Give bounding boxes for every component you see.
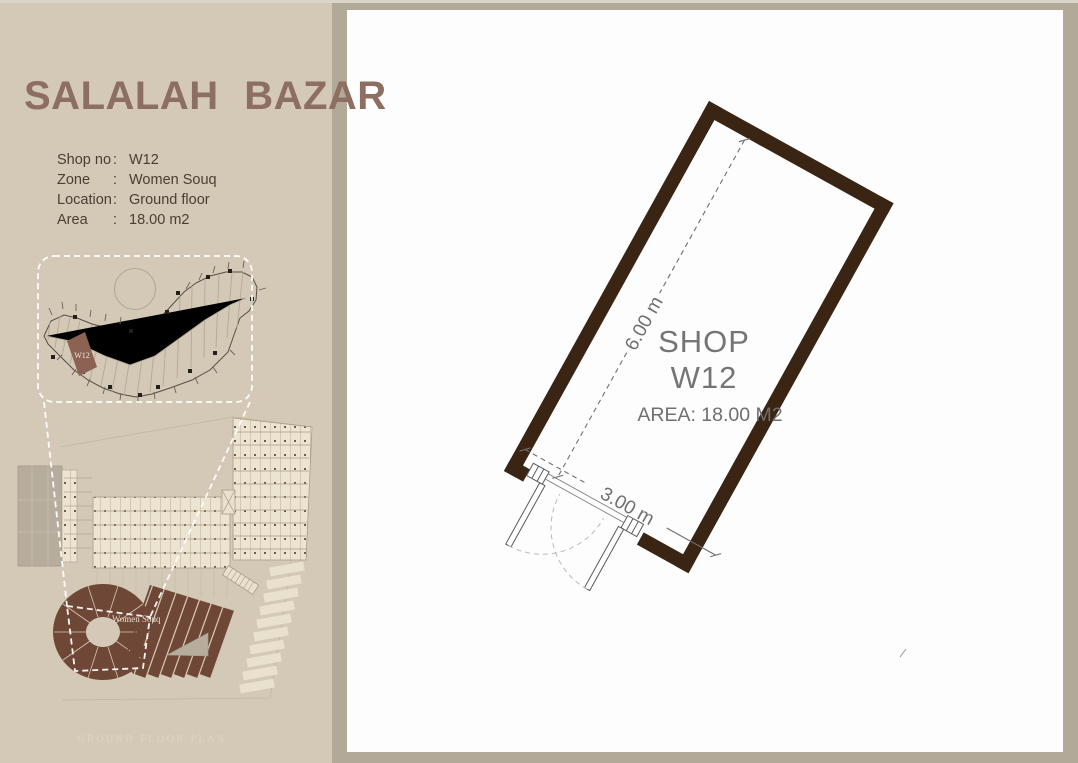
info-row-location: Location : Ground floor (57, 190, 217, 210)
shop-rows-block (93, 497, 230, 568)
info-value: Ground floor (129, 190, 217, 210)
info-row-shop-no: Shop no : W12 (57, 150, 217, 170)
door-swing-right (526, 494, 621, 589)
shop-area-label: AREA: 18.00 M2 (637, 404, 782, 426)
info-separator: : (113, 190, 129, 210)
info-value: Women Souq (129, 170, 217, 190)
door-leaf-left (506, 483, 545, 547)
info-label: Shop no (57, 150, 113, 170)
site-plan: Women Souq GROUND FLOOR PLAN (18, 417, 312, 745)
shop-name-line1: SHOP (658, 324, 750, 359)
shop-plan-drawing: 6.00 m 3.00 m (347, 10, 1063, 752)
page-title: SALALAH BAZAR (24, 74, 387, 119)
courtyard-circle (115, 269, 156, 310)
brochure-page: SALALAH BAZAR Shop no : W12 Zone : Women… (0, 0, 1078, 763)
info-value: W12 (129, 150, 217, 170)
door-swing-left (508, 484, 603, 579)
info-separator: : (113, 170, 129, 190)
shop-name-line2: W12 (671, 360, 738, 395)
info-separator: : (113, 210, 129, 230)
parcel-label: W12 (74, 351, 90, 360)
location-maps: Women Souq GROUND FLOOR PLAN (0, 248, 333, 763)
info-value: 18.00 m2 (129, 210, 217, 230)
info-row-area: Area : 18.00 m2 (57, 210, 217, 230)
shop-info-list: Shop no : W12 Zone : Women Souq Location… (57, 150, 217, 230)
ground-floor-plan-caption: GROUND FLOOR PLAN (77, 734, 226, 745)
top-strip (0, 0, 1078, 3)
east-wing-block (233, 418, 312, 560)
door-leaf-right (584, 526, 623, 590)
info-label: Area (57, 210, 113, 230)
stray-tick (900, 649, 906, 657)
women-souq-zone: Women Souq (53, 580, 239, 680)
detail-map: W12 (44, 261, 266, 403)
info-label: Zone (57, 170, 113, 190)
service-block (18, 466, 62, 566)
left-panel: SALALAH BAZAR Shop no : W12 Zone : Women… (0, 0, 332, 763)
info-row-zone: Zone : Women Souq (57, 170, 217, 190)
shop-dividers (46, 272, 246, 396)
shop-plan-panel: 6.00 m 3.00 m (347, 10, 1063, 752)
info-separator: : (113, 150, 129, 170)
info-label: Location (57, 190, 113, 210)
